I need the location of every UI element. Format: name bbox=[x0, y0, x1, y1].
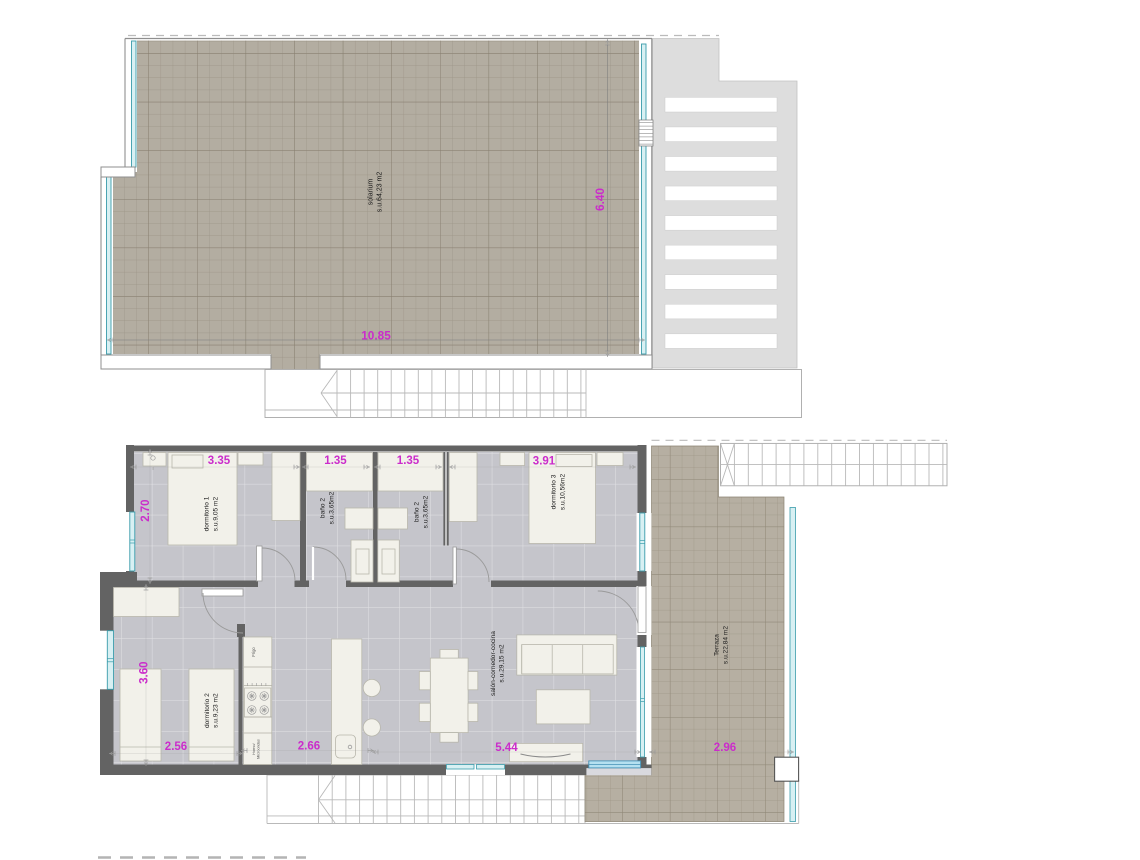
svg-text:2.96: 2.96 bbox=[714, 742, 736, 754]
svg-text:s.u.9,05 m2: s.u.9,05 m2 bbox=[212, 496, 219, 531]
svg-text:s.u.22,84 m2: s.u.22,84 m2 bbox=[722, 626, 729, 664]
svg-text:3.35: 3.35 bbox=[208, 455, 231, 467]
svg-text:s.u.3,65m2: s.u.3,65m2 bbox=[328, 491, 335, 524]
svg-text:dormitorio 3: dormitorio 3 bbox=[551, 474, 558, 509]
svg-text:2.70: 2.70 bbox=[140, 499, 152, 521]
svg-text:s.u.29,15 m2: s.u.29,15 m2 bbox=[499, 644, 506, 682]
svg-text:3.60: 3.60 bbox=[139, 662, 151, 684]
svg-text:dormitorio 1: dormitorio 1 bbox=[204, 496, 211, 531]
svg-text:Terraza: Terraza bbox=[714, 634, 721, 656]
svg-text:3.91: 3.91 bbox=[533, 456, 556, 468]
svg-text:Microondas: Microondas bbox=[257, 739, 261, 759]
svg-text:5.44: 5.44 bbox=[495, 742, 518, 754]
svg-text:s.u.10,56m2: s.u.10,56m2 bbox=[559, 474, 566, 511]
svg-text:s.u.9,23 m2: s.u.9,23 m2 bbox=[213, 693, 220, 728]
svg-text:baño 2: baño 2 bbox=[320, 498, 327, 519]
svg-text:Horno/: Horno/ bbox=[252, 742, 256, 754]
svg-text:dormitorio 2: dormitorio 2 bbox=[204, 693, 211, 728]
svg-text:s.u.64,23 m2: s.u.64,23 m2 bbox=[377, 172, 384, 213]
svg-text:10.85: 10.85 bbox=[361, 329, 391, 343]
svg-text:1.35: 1.35 bbox=[324, 455, 347, 467]
svg-text:2.66: 2.66 bbox=[298, 741, 320, 753]
svg-text:Frigo: Frigo bbox=[251, 647, 256, 657]
svg-text:6.40: 6.40 bbox=[593, 188, 607, 211]
svg-text:1.35: 1.35 bbox=[397, 455, 420, 467]
svg-text:salón-comedor-cocina: salón-comedor-cocina bbox=[490, 631, 497, 696]
svg-text:baño 2: baño 2 bbox=[414, 502, 421, 523]
svg-text:solarium: solarium bbox=[368, 179, 375, 206]
svg-text:s.u.3,65m2: s.u.3,65m2 bbox=[422, 495, 429, 528]
svg-text:2.56: 2.56 bbox=[165, 741, 187, 753]
